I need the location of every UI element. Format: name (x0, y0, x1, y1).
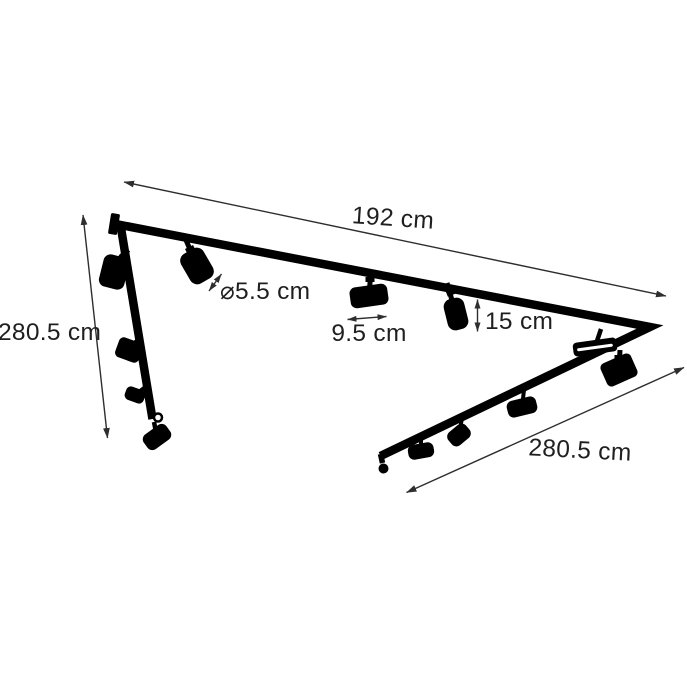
spotlight-a (97, 250, 130, 291)
spotlight-k (123, 385, 147, 405)
spotlight-l (140, 421, 173, 452)
spotlight-f (599, 350, 639, 388)
track-connector-ring (154, 414, 162, 422)
dimension-label-spot-diameter: ⌀5.5 cm (220, 278, 310, 305)
track-end-ball (379, 464, 389, 474)
spotlight-e (572, 329, 618, 357)
track-end-hook (381, 454, 383, 463)
dimension-label-top-track: 192 cm (351, 202, 435, 235)
dimension-label-right-track: 280.5 cm (528, 434, 632, 466)
dimension-label-spot-height: 15 cm (485, 308, 553, 335)
dimension-line-right-track (407, 368, 685, 493)
dimension-label-spot-width: 9.5 cm (331, 320, 406, 347)
dimension-labels: 192 cm 280.5 cm ⌀5.5 cm 9.5 cm 15 cm 280… (0, 202, 632, 467)
diagram-canvas: 192 cm 280.5 cm ⌀5.5 cm 9.5 cm 15 cm 280… (0, 0, 687, 687)
dimension-label-left-track: 280.5 cm (0, 319, 101, 346)
track-lighting-diagram: 192 cm 280.5 cm ⌀5.5 cm 9.5 cm 15 cm 280… (0, 0, 687, 687)
spotlight-b (177, 240, 217, 287)
